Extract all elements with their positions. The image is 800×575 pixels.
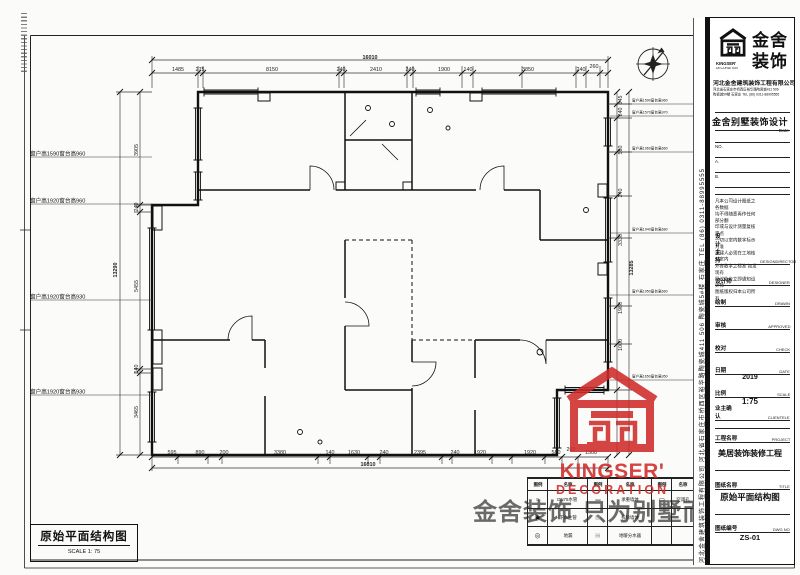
compass-icon	[636, 47, 670, 81]
no-label: A.	[715, 159, 719, 164]
dim-bottom: 2395	[414, 449, 426, 455]
brand-logo-red: KINGSER' DECORATION	[556, 364, 668, 497]
drawing-sheet: { "sheet": { "drawing_title": "原始平面结构图",…	[0, 0, 800, 575]
legend-label: 拆除墙体	[608, 509, 652, 527]
dim-right: 1000	[617, 339, 623, 351]
legend-symbol: ◉	[528, 509, 548, 527]
legend-header: 图例	[528, 479, 548, 491]
company-side-strip: 河北金舍建筑装饰工程有限公司 河北省石家庄市桥西区裕华路陶瓷城411 506 陶…	[693, 18, 707, 565]
kingser-seal-icon-black	[718, 28, 748, 62]
project-value: 美居装饰装修工程	[710, 448, 790, 459]
dim-left: 140	[133, 364, 139, 373]
dim-right-total: 13285	[628, 260, 634, 275]
dim-right: 560	[617, 145, 623, 154]
divider	[38, 545, 130, 546]
legend-label	[672, 527, 694, 545]
dim-left: 5455	[133, 280, 139, 292]
title-value: 原始平面结构图	[710, 491, 790, 503]
drawing-title: 原始平面结构图	[31, 528, 137, 544]
dim-bottom: 1920	[474, 449, 486, 455]
disclaimer-text: 凡本公司设计图纸之各数据 均不得随意再作任何部分翻 印或与设计测量复核定点 一切…	[715, 198, 759, 302]
legend-symbol	[652, 527, 672, 545]
dim-bottom: 595	[167, 449, 176, 455]
dim-bottom: 890	[195, 449, 204, 455]
window-label: 窗户高1570窗台高970	[632, 109, 668, 114]
dim-bottom: 240	[379, 449, 388, 455]
dim-top-total: 16010	[362, 54, 377, 60]
legend-label: 地漏	[548, 527, 588, 545]
title-block-panel: KINGSER' DECORATION 金舍 装饰 河北金舍建筑装饰工程有限公司…	[706, 18, 794, 564]
window-label: 窗户高1590窗台高960	[30, 149, 85, 157]
dim-right: 3330	[617, 234, 623, 246]
brand-en-text: DECORATION	[556, 483, 668, 497]
brand-en-small: KINGSER'	[716, 62, 736, 66]
field-design-director: 设计主持DESIGNDIRECTOR	[715, 254, 790, 265]
no-label: NO.	[715, 144, 723, 149]
field-project: 工程名称PROJECT	[715, 432, 790, 443]
dim-bottom: 3380	[274, 449, 286, 455]
legend-symbol: ○	[528, 491, 548, 509]
company-side-text: 河北金舍建筑装饰工程有限公司 河北省石家庄市桥西区裕华路陶瓷城411 506 陶…	[697, 18, 706, 563]
dim-left-total: 13290	[112, 262, 118, 277]
window-label: 窗户高1960窗台高660	[632, 145, 668, 150]
company-address: 陶瓷城5#楼 石家庄 TEL (86) 0311-88995555	[713, 92, 779, 97]
dim-top: 240	[405, 66, 414, 72]
field-dwg-no: 图纸编号DWG NO	[715, 522, 790, 533]
dim-top: 275	[195, 66, 204, 72]
dim-bottom: 200	[219, 449, 228, 455]
legend-label: 空调孔	[672, 491, 694, 509]
dim-bottom: 1630	[348, 449, 360, 455]
brand-en-text: KINGSER'	[556, 461, 668, 483]
legend-label: 地暖分水器	[608, 527, 652, 545]
window-label: 窗户高1920窗台高930	[30, 292, 85, 300]
product-line: 金舍别墅装饰设计	[710, 115, 790, 128]
legend-symbol: ◎	[528, 527, 548, 545]
dim-bottom: 1920	[524, 449, 536, 455]
dim-right: 1980	[617, 302, 623, 314]
dim-left: 3465	[133, 406, 139, 418]
field-approved: 审核APPROVED	[715, 319, 790, 330]
legend-symbol	[652, 509, 672, 527]
brand-en-small: DECORATION	[716, 67, 738, 70]
dim-left: 3905	[133, 144, 139, 156]
company-address: 河北省石家庄市桥西区裕华路陶瓷城411 506	[713, 87, 779, 92]
legend-symbol: ▨	[588, 509, 608, 527]
window-label: 窗户高1920窗台高960	[30, 196, 85, 204]
dim-top: 140	[463, 66, 472, 72]
drawing-title-box: 原始平面结构图 SCALE 1: 75	[30, 524, 138, 562]
field-check: 校对CHECK	[715, 342, 790, 353]
dwg-no-value: ZS-01	[710, 533, 790, 542]
dim-bottom-total: 16010	[360, 461, 375, 467]
legend-header: 名称	[672, 479, 694, 491]
brand-cn: 装饰	[752, 47, 788, 72]
window-label: 窗户高1920窗台高930	[30, 387, 85, 395]
drawing-scale: SCALE 1: 75	[47, 548, 121, 554]
company-name: 河北金舍建筑装饰工程有限公司	[713, 78, 795, 87]
dim-top: 240	[576, 66, 585, 72]
window-label: 窗户高1590窗台高960	[632, 97, 668, 102]
date-label: Date	[779, 128, 789, 133]
legend-label	[672, 509, 694, 527]
kingser-seal-icon	[562, 364, 662, 456]
plan-walls	[148, 88, 613, 456]
dim-top: 2410	[370, 66, 382, 72]
window-label: 窗户高1950窗台高660	[632, 288, 668, 293]
field-clientele: 业主确认CLIENTELE	[715, 410, 790, 421]
dim-top: 1485	[172, 66, 184, 72]
field-designer: 设计师DESIGNER	[715, 275, 790, 286]
dim-top: 1900	[438, 66, 450, 72]
field-title: 图纸名称TITLE	[715, 479, 790, 490]
field-drawn: 绘制DRAWN	[715, 296, 790, 307]
dim-right: 240	[617, 107, 623, 116]
dim-top: 260	[589, 63, 598, 69]
dim-top: 3850	[522, 66, 534, 72]
dim-bottom: 240	[450, 449, 459, 455]
dim-top: 8150	[266, 66, 278, 72]
dim-bottom: 140	[325, 449, 334, 455]
legend-symbol: ▤	[588, 527, 608, 545]
fold-mark-strip	[21, 13, 27, 73]
window-label: 窗户高1940窗台高680	[632, 226, 668, 231]
legend-label: 下水主管	[548, 509, 588, 527]
dim-top: 240	[336, 66, 345, 72]
dim-left: 240	[133, 202, 139, 211]
date-value: 2019	[710, 374, 790, 381]
no-label: B.	[715, 174, 719, 179]
dim-right: 545	[617, 95, 623, 104]
dim-right: 240	[617, 188, 623, 197]
